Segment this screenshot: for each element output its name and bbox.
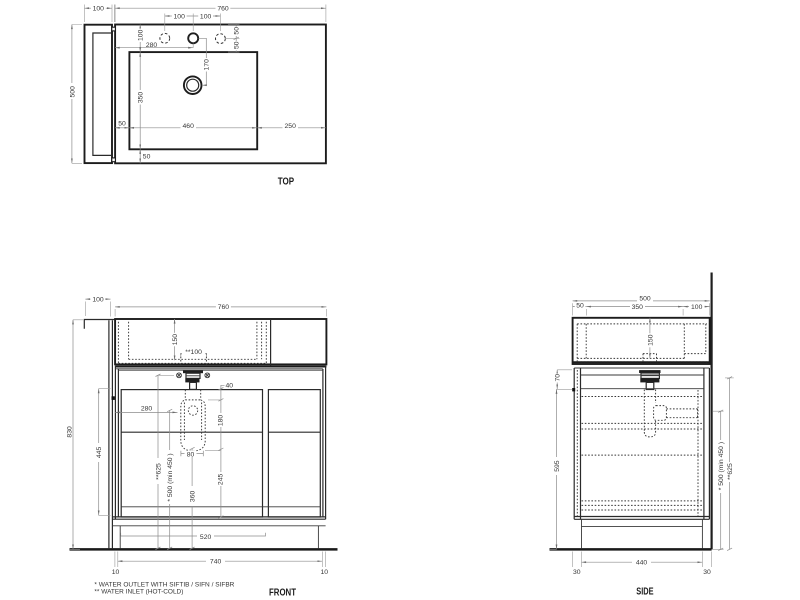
svg-text:245: 245 bbox=[217, 474, 224, 486]
svg-text:760: 760 bbox=[218, 304, 230, 311]
svg-text:500: 500 bbox=[69, 86, 76, 98]
svg-text:180: 180 bbox=[217, 415, 224, 427]
svg-text:30: 30 bbox=[703, 569, 711, 576]
svg-text:740: 740 bbox=[210, 559, 222, 566]
svg-text:595: 595 bbox=[554, 460, 561, 472]
svg-text:40: 40 bbox=[226, 383, 234, 390]
svg-text:10: 10 bbox=[112, 569, 120, 576]
svg-text:70: 70 bbox=[555, 374, 562, 382]
svg-text:250: 250 bbox=[285, 123, 297, 130]
svg-text:** WATER INLET (HOT-COLD): ** WATER INLET (HOT-COLD) bbox=[94, 589, 183, 596]
svg-text:460: 460 bbox=[183, 123, 195, 130]
svg-text:**625: **625 bbox=[155, 463, 162, 480]
svg-text:* 500 (min 450 ): * 500 (min 450 ) bbox=[718, 442, 725, 490]
svg-text:100: 100 bbox=[138, 29, 145, 41]
svg-text:100: 100 bbox=[92, 296, 104, 303]
svg-text:280: 280 bbox=[146, 42, 158, 49]
svg-text:**100: **100 bbox=[185, 349, 202, 356]
svg-text:500: 500 bbox=[639, 296, 651, 303]
svg-text:760: 760 bbox=[217, 6, 229, 13]
svg-text:350: 350 bbox=[138, 92, 145, 104]
svg-text:280: 280 bbox=[141, 406, 153, 413]
svg-text:360: 360 bbox=[190, 491, 197, 503]
svg-text:170: 170 bbox=[204, 59, 211, 71]
svg-text:100: 100 bbox=[691, 304, 703, 311]
svg-text:SIDE: SIDE bbox=[636, 586, 654, 597]
svg-text:50: 50 bbox=[118, 121, 126, 128]
svg-text:830: 830 bbox=[67, 426, 74, 438]
svg-text:* 500 (min 450 ): * 500 (min 450 ) bbox=[167, 453, 174, 501]
svg-text:520: 520 bbox=[200, 534, 212, 541]
svg-text:50: 50 bbox=[576, 302, 584, 309]
svg-text:50: 50 bbox=[143, 154, 151, 161]
svg-text:50: 50 bbox=[234, 27, 241, 35]
svg-text:100: 100 bbox=[174, 13, 186, 20]
svg-text:FRONT: FRONT bbox=[269, 587, 296, 598]
svg-text:440: 440 bbox=[636, 560, 648, 567]
svg-text:50: 50 bbox=[234, 41, 241, 49]
svg-text:150: 150 bbox=[172, 334, 179, 346]
svg-text:30: 30 bbox=[573, 569, 581, 576]
svg-text:**625: **625 bbox=[727, 463, 734, 480]
svg-text:150: 150 bbox=[647, 334, 654, 346]
svg-text:TOP: TOP bbox=[278, 177, 295, 188]
svg-text:* WATER OUTLET WITH SIFTIB /: * WATER OUTLET WITH SIFTIB / SIFN / SIFB… bbox=[94, 581, 234, 588]
svg-text:100: 100 bbox=[93, 6, 105, 13]
svg-text:445: 445 bbox=[96, 447, 103, 459]
svg-text:350: 350 bbox=[632, 304, 644, 311]
svg-text:10: 10 bbox=[321, 569, 329, 576]
svg-text:80: 80 bbox=[187, 452, 195, 459]
svg-text:100: 100 bbox=[200, 13, 212, 20]
